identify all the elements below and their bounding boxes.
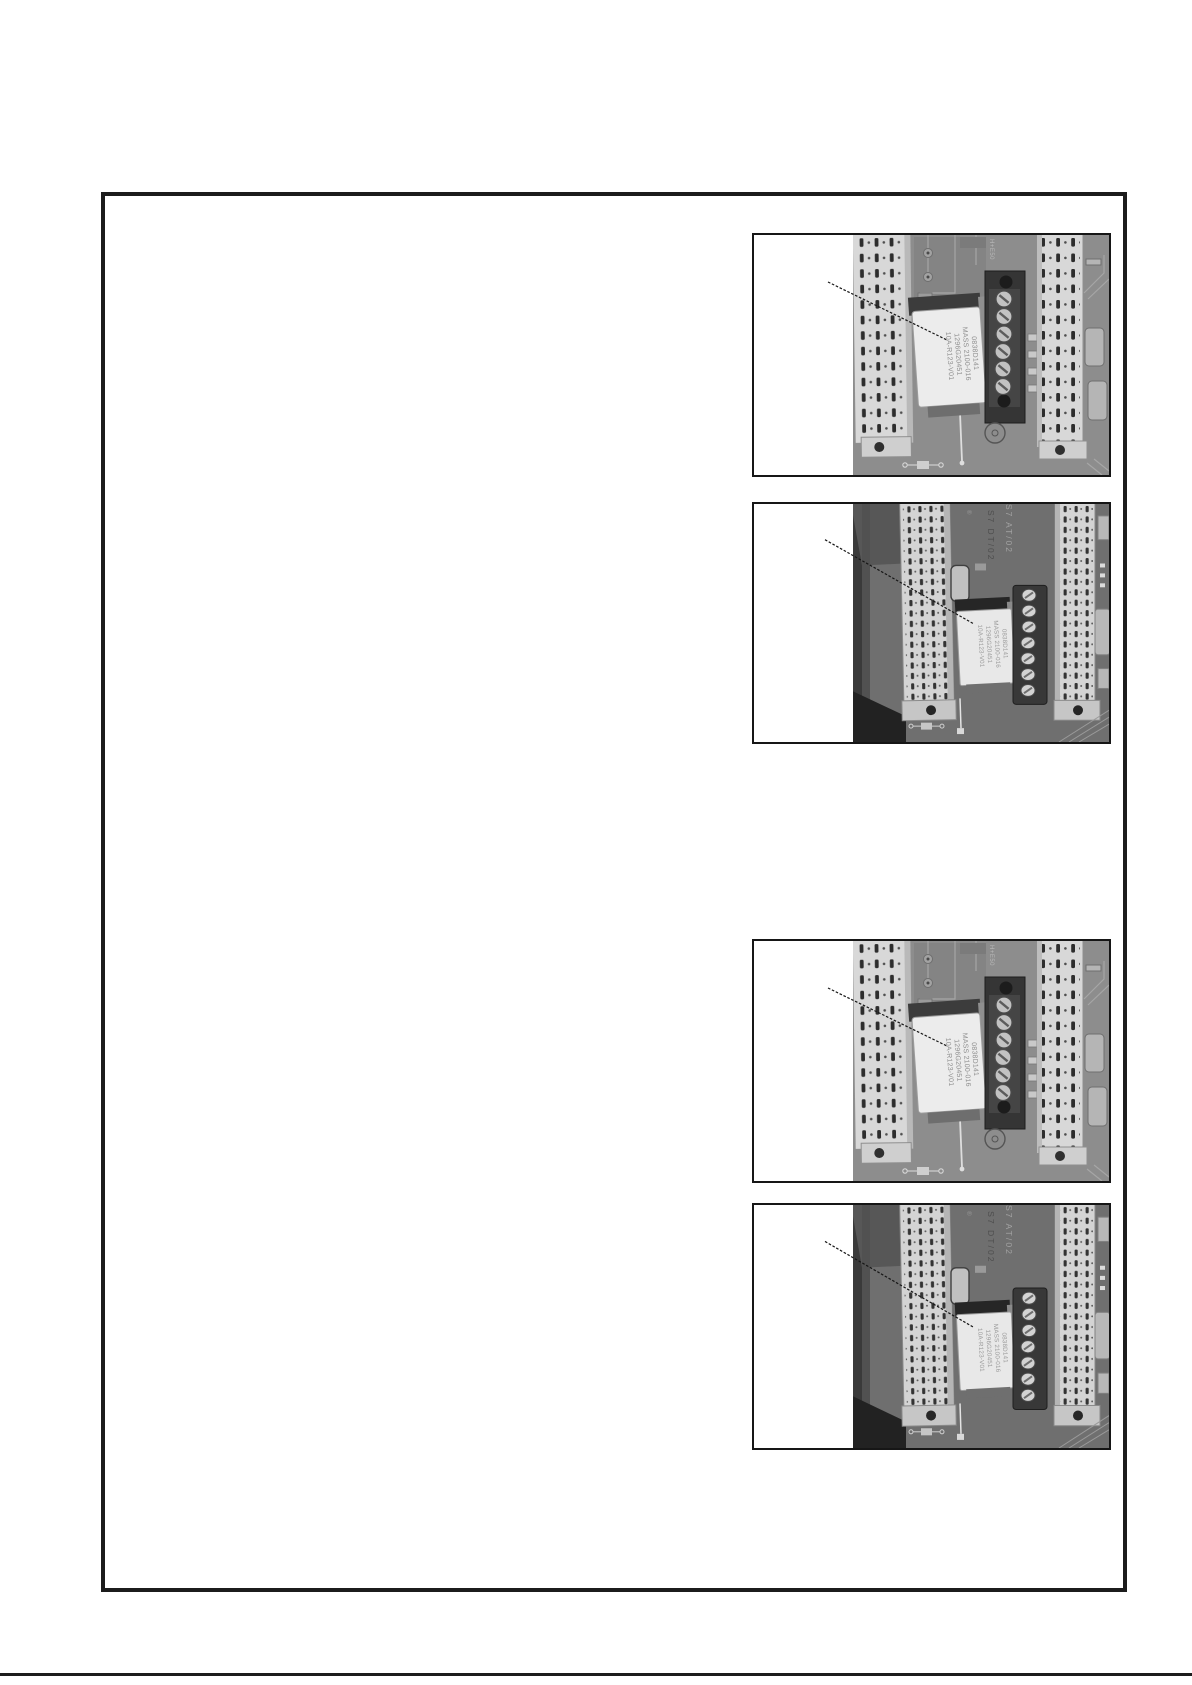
figure-photo-3: 0838D141 MASS 2100-016 1296G20451 10A-R1… <box>752 939 1111 1183</box>
wire-pad <box>957 728 964 734</box>
wire-pad <box>957 1434 964 1440</box>
callout-box <box>754 941 853 1181</box>
relay: 0838D141 MASS 2100-016 1296G20451 10A-R1… <box>908 292 995 418</box>
terminal-block <box>1013 585 1047 704</box>
board-marking: H+E50 <box>988 239 994 260</box>
pad-hole <box>927 982 930 985</box>
relay: 0838D141 MASS 2100-016 1296G20451 10A-R1… <box>955 1300 1019 1399</box>
connector-strip-right <box>1037 941 1087 1165</box>
wire <box>960 1403 961 1433</box>
dark-pad <box>960 237 986 248</box>
terminal-block <box>985 977 1025 1129</box>
callout-box <box>754 504 853 742</box>
terminal-block <box>1013 1288 1047 1410</box>
wire <box>960 698 961 728</box>
board-marking-dt: S7 DT/02 <box>986 510 996 561</box>
small-component <box>951 565 969 601</box>
pad-hole <box>927 276 930 279</box>
led-dots <box>1100 564 1105 588</box>
connector-strip-left <box>852 941 913 1163</box>
board-marking-at: S7 AT/02 <box>1004 1205 1014 1256</box>
figure-photo-2: 0838D141 MASS 2100-016 1296G20451 10A-R1… <box>752 502 1111 744</box>
pcb-photo-top-view: 0838D141 MASS 2100-016 1296G20451 10A-R1… <box>754 235 1109 475</box>
figure-photo-4: 0838D141 MASS 2100-016 1296G20451 10A-R1… <box>752 1203 1111 1450</box>
small-component <box>951 1268 969 1304</box>
connector-strip-right <box>1054 1205 1100 1426</box>
small-pad <box>975 564 986 571</box>
connector-strip-left <box>898 504 957 721</box>
figure-photo-1: 0838D141 MASS 2100-016 1296G20451 10A-R1… <box>752 233 1111 477</box>
board-marking-reg: ® <box>965 1211 972 1216</box>
wire-pad <box>960 461 965 466</box>
pad-hole <box>927 958 930 961</box>
connector-strip-left <box>852 235 913 457</box>
connector-strip-right <box>1037 235 1087 459</box>
dark-pad <box>960 943 986 954</box>
small-pad <box>975 1266 986 1273</box>
callout-box <box>754 1205 853 1448</box>
pcb-photo-angled-view: 0838D141 MASS 2100-016 1296G20451 10A-R1… <box>754 504 1109 742</box>
board-marking-reg: ® <box>965 510 972 515</box>
pcb-photo-angled-view: 0838D141 MASS 2100-016 1296G20451 10A-R1… <box>754 1205 1109 1448</box>
callout-box <box>754 235 853 475</box>
pcb-photo-top-view: 0838D141 MASS 2100-016 1296G20451 10A-R1… <box>754 941 1109 1181</box>
pad-hole <box>927 252 930 255</box>
terminal-block <box>985 271 1025 423</box>
board-marking-at: S7 AT/02 <box>1004 504 1014 554</box>
relay: 0838D141 MASS 2100-016 1296G20451 10A-R1… <box>908 998 995 1124</box>
board-marking-dt: S7 DT/02 <box>986 1211 996 1264</box>
connector-strip-left <box>898 1205 957 1426</box>
wire-pad <box>960 1167 965 1172</box>
relay: 0838D141 MASS 2100-016 1296G20451 10A-R1… <box>955 597 1019 694</box>
led-dots <box>1100 1266 1105 1290</box>
connector-strip-right <box>1054 504 1100 720</box>
page-bottom-rule <box>0 1673 1192 1676</box>
board-marking: H+E50 <box>988 945 994 966</box>
